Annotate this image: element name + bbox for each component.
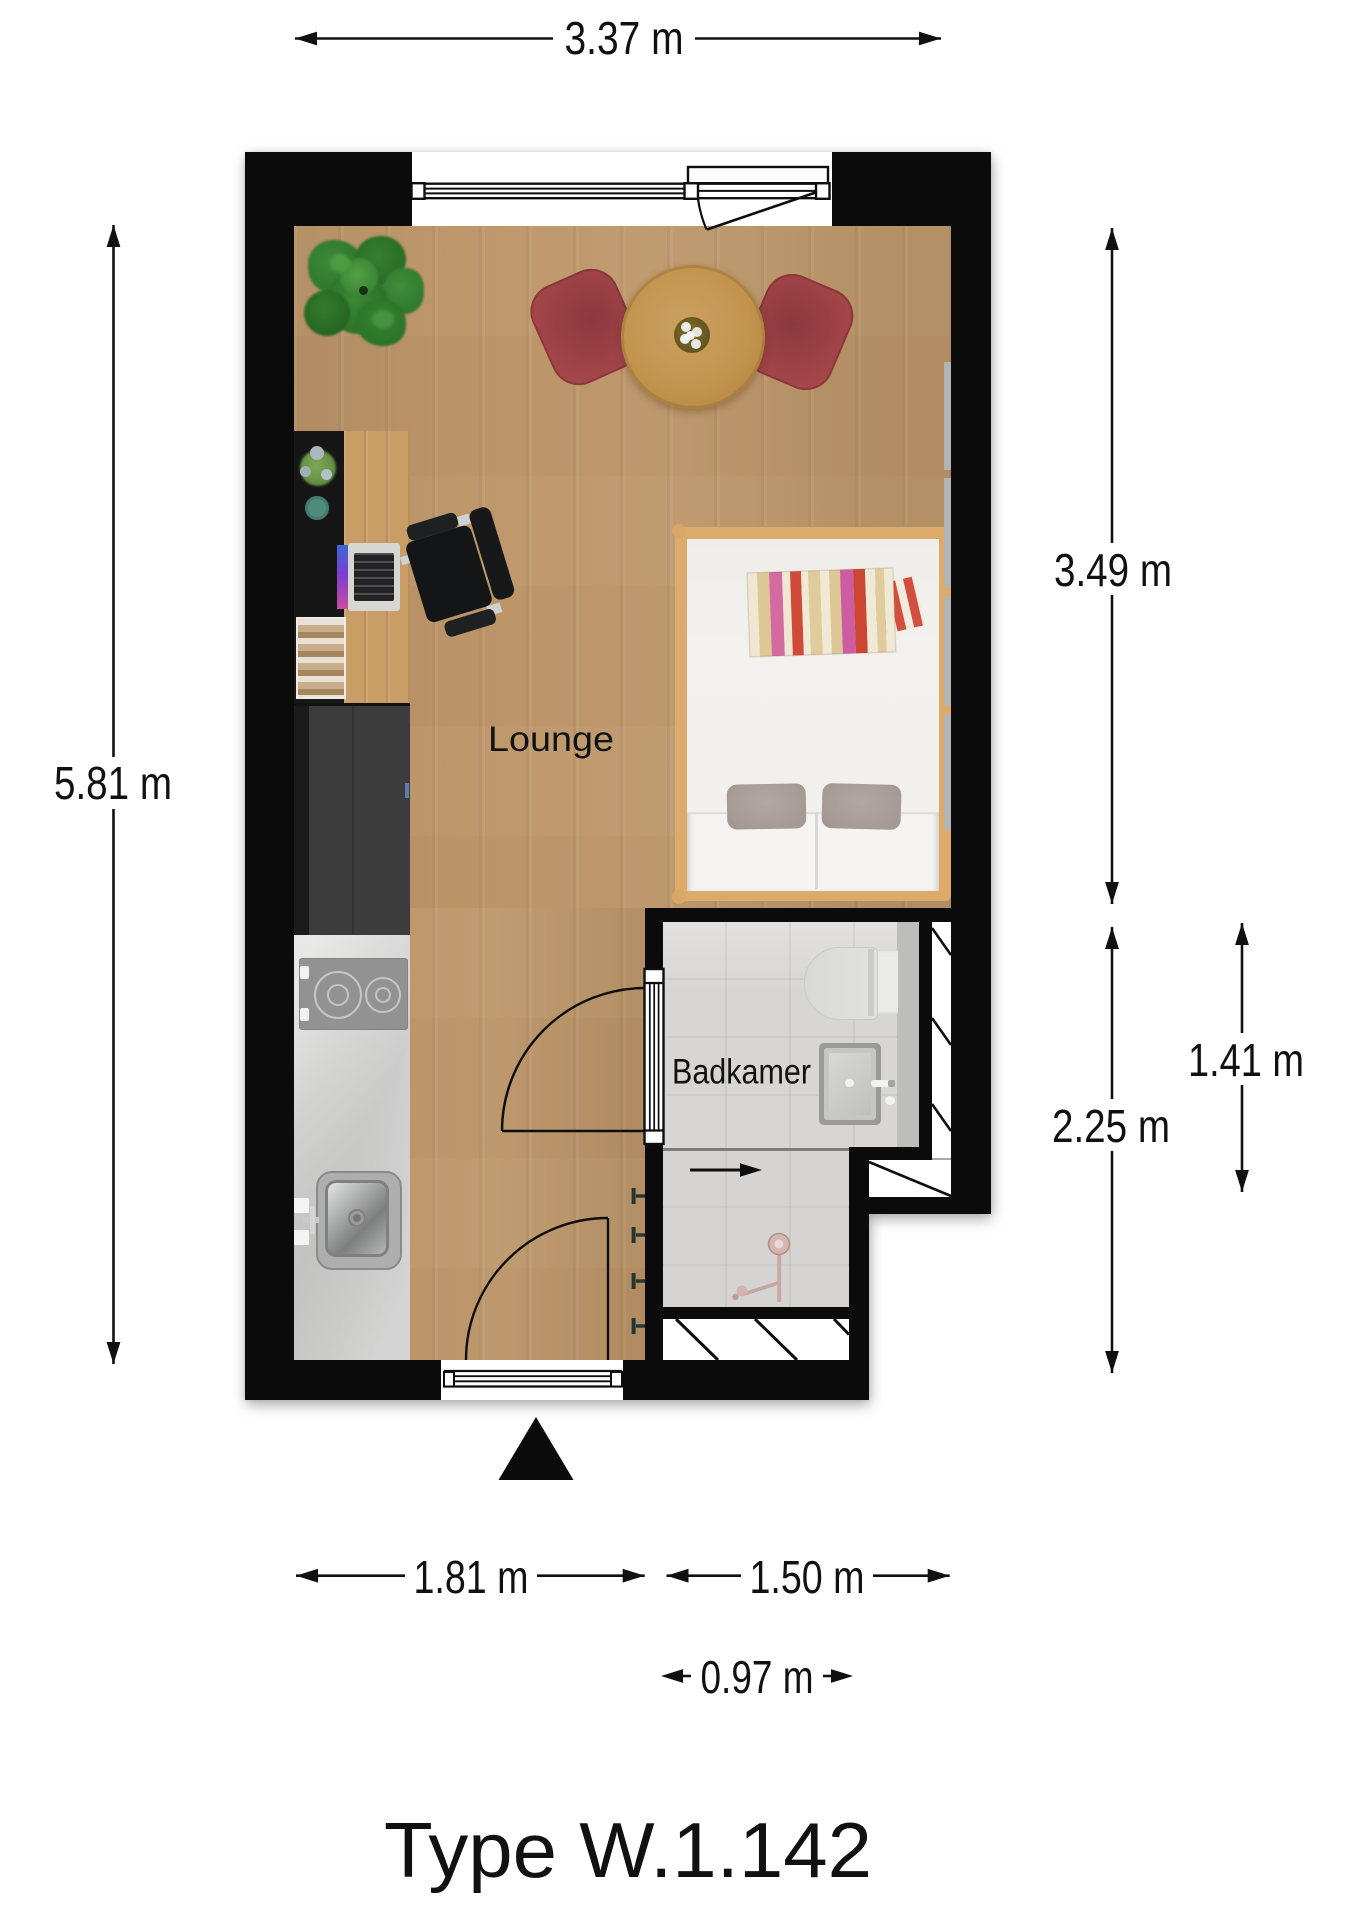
svg-text:Type W.1.142: Type W.1.142 bbox=[384, 1806, 872, 1894]
svg-text:0.97 m: 0.97 m bbox=[701, 1651, 814, 1703]
svg-text:5.81 m: 5.81 m bbox=[54, 757, 172, 809]
svg-text:2.25 m: 2.25 m bbox=[1052, 1100, 1170, 1152]
svg-text:3.37 m: 3.37 m bbox=[565, 12, 684, 64]
svg-text:Lounge: Lounge bbox=[488, 719, 614, 759]
svg-text:Badkamer: Badkamer bbox=[672, 1052, 811, 1092]
svg-text:3.49 m: 3.49 m bbox=[1054, 544, 1172, 596]
svg-text:1.81 m: 1.81 m bbox=[414, 1551, 529, 1603]
svg-text:1.50 m: 1.50 m bbox=[750, 1551, 865, 1603]
svg-text:1.41 m: 1.41 m bbox=[1188, 1034, 1304, 1086]
